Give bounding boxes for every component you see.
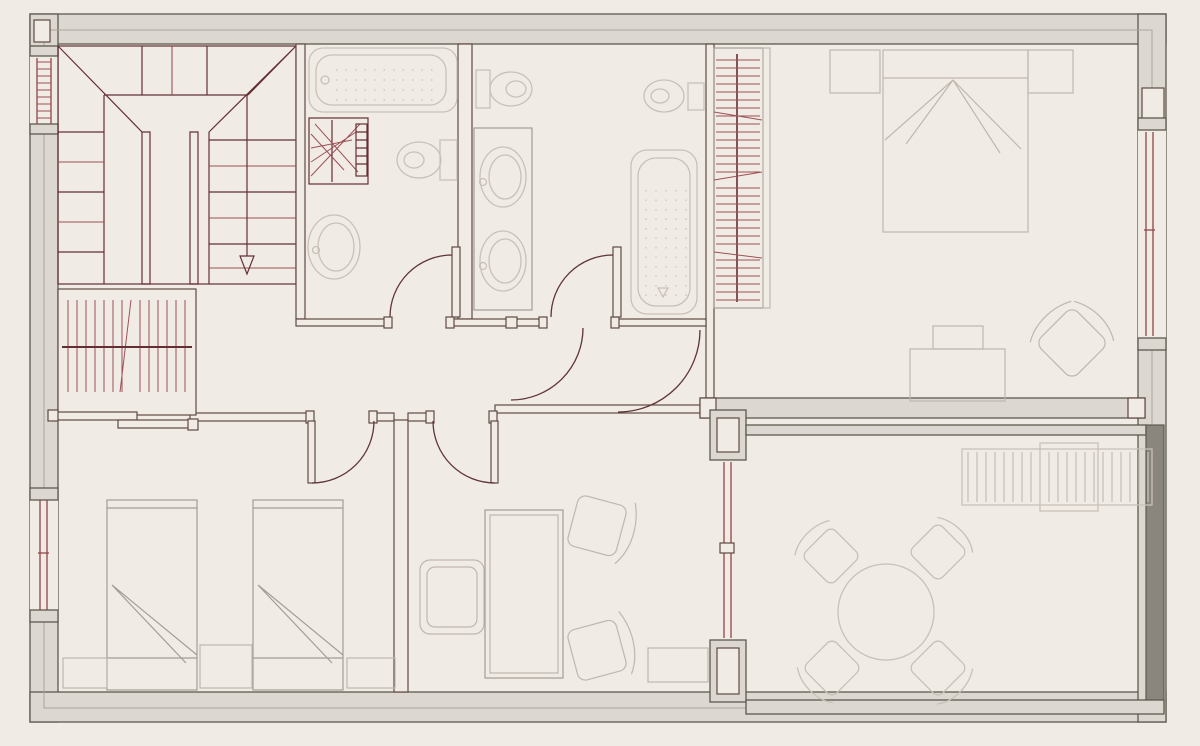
main-bedroom-window [1138,118,1166,350]
terrace-east-wall [1146,425,1164,712]
terrace-north-wall [746,425,1146,435]
twin-bedroom-window [30,488,58,622]
hall-closet [58,289,196,415]
wall-notch-topleft [34,20,50,42]
stairwell-window [30,46,58,134]
floor-plan [0,0,1200,746]
terrace-south-wall [746,700,1164,714]
wall-notch-topright [1142,88,1164,122]
